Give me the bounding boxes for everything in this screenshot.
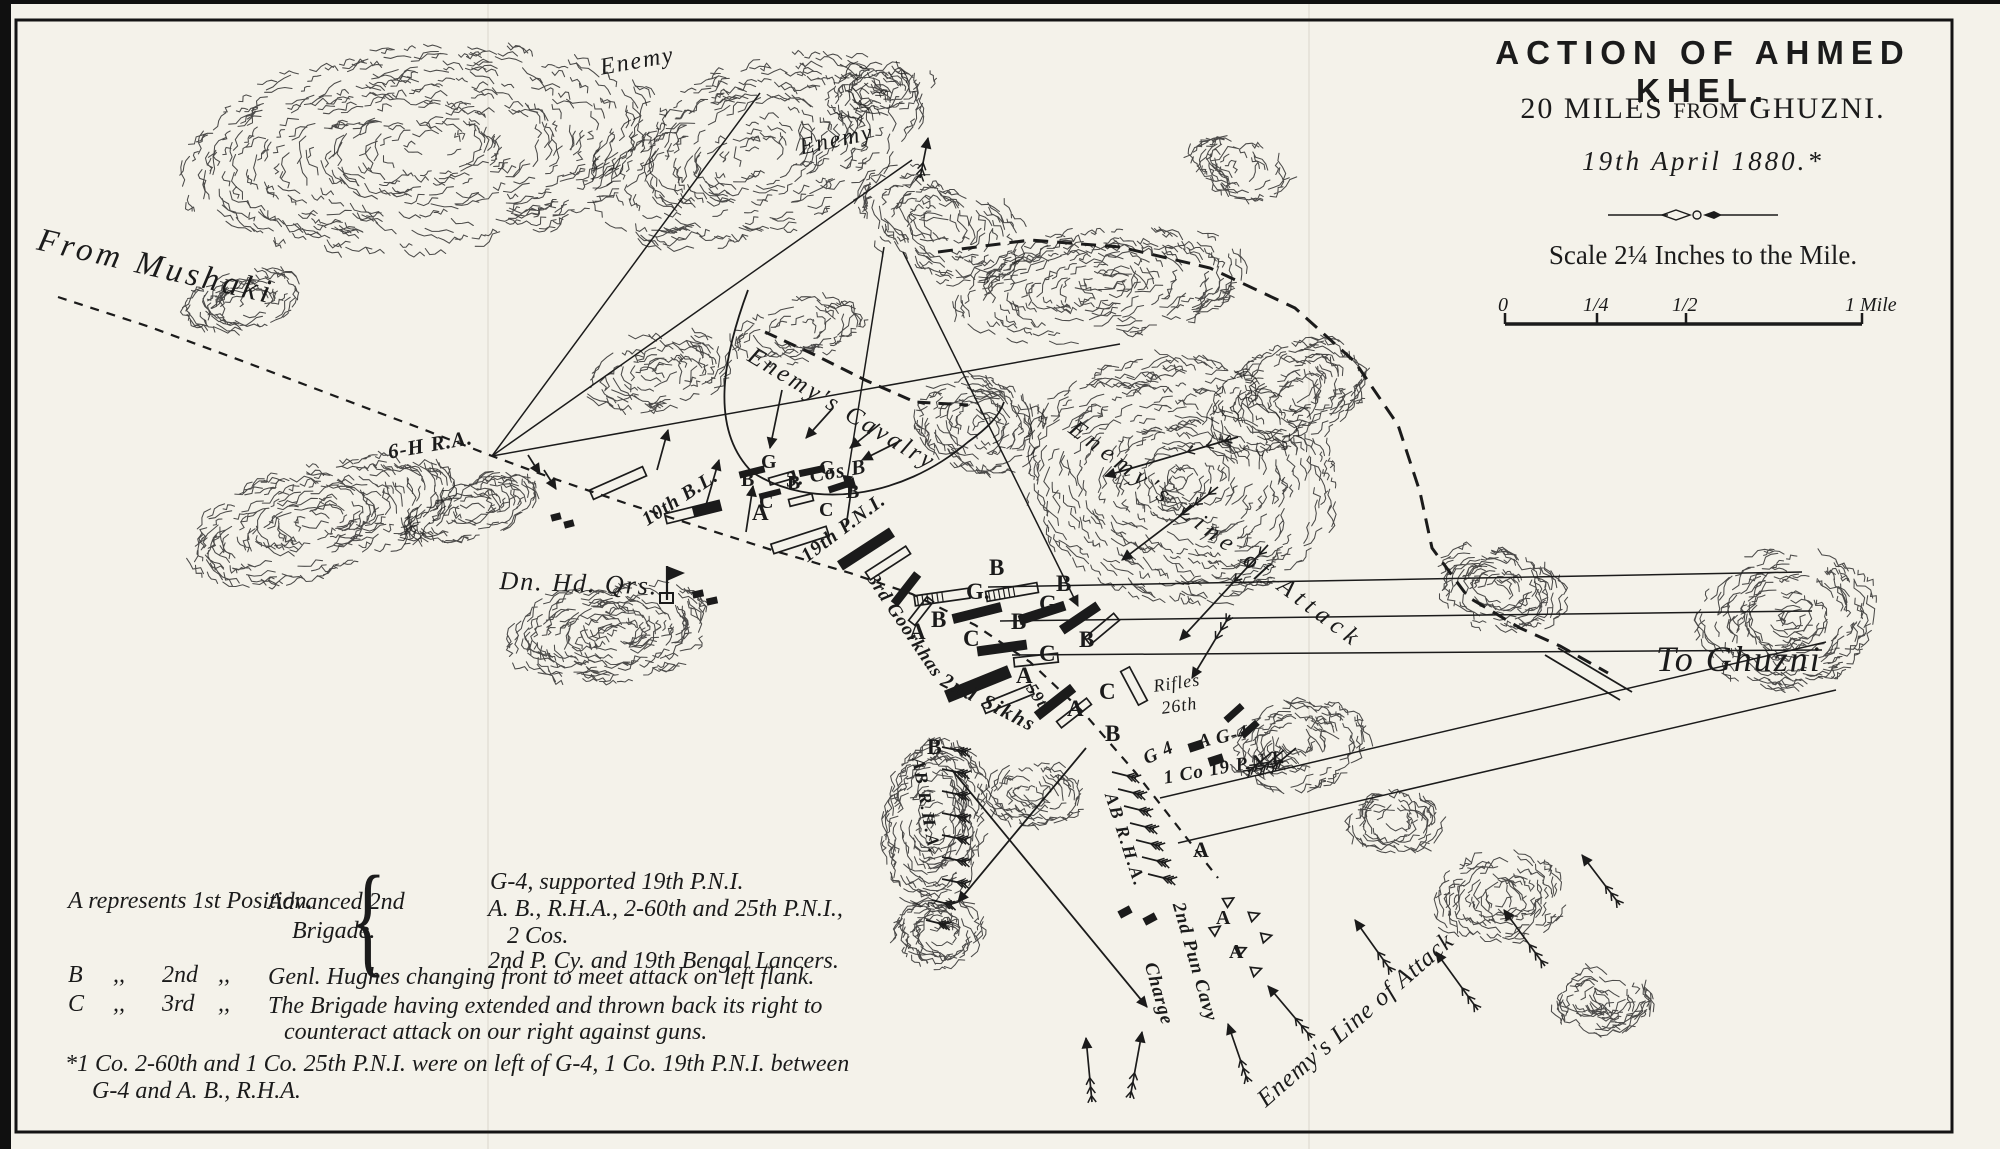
legend-row-c-text: The Brigade having extended and thrown b…: [268, 993, 822, 1020]
legend-key-b: B: [68, 962, 83, 989]
scale-text: Scale 2¼ Inches to the Mile.: [1438, 240, 1968, 271]
page-edge-top: [0, 0, 2000, 4]
page-edge-left: [0, 0, 11, 1149]
subtitle-part: 20 MILES: [1520, 92, 1673, 125]
legend-row-c-text: counteract attack on our right against g…: [284, 1019, 707, 1046]
legend-key-c: C: [68, 991, 84, 1018]
legend-ditto: ,,: [218, 991, 230, 1018]
legend-ord: 3rd: [162, 991, 194, 1018]
legend-footnote: G-4 and A. B., R.H.A.: [92, 1078, 301, 1105]
legend-footnote: *1 Co. 2-60th and 1 Co. 25th P.N.I. were…: [65, 1051, 849, 1078]
legend-row-b-text: Genl. Hughes changing front to meet atta…: [268, 964, 814, 991]
legend-ditto: ,,: [218, 962, 230, 989]
map-date: 19th April 1880.*: [1438, 146, 1968, 177]
subtitle-part: GHUZNI.: [1740, 92, 1886, 125]
battle-map-page: From MushakiEnemyEnemyEnemy's CavalryEne…: [0, 0, 2000, 1149]
legend-ord: 2nd: [162, 962, 198, 989]
legend-brace-item: A. B., R.H.A., 2-60th and 25th P.N.I.,: [488, 896, 843, 923]
map-subtitle: 20 MILES FROM GHUZNI.: [1438, 92, 1968, 126]
legend-brace-item: 2 Cos.: [507, 923, 568, 950]
subtitle-part-small: FROM: [1673, 98, 1739, 123]
legend-ditto: ,,: [113, 991, 125, 1018]
paper-crease: [1308, 0, 1310, 1149]
legend-ditto: ,,: [113, 962, 125, 989]
legend-brace-item: G-4, supported 19th P.N.I.: [490, 869, 744, 896]
